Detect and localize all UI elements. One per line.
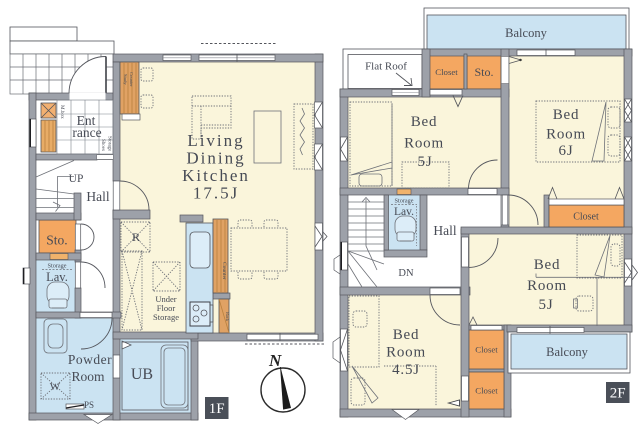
svg-text:2F: 2F	[610, 386, 626, 402]
svg-text:rance: rance	[72, 125, 101, 140]
svg-text:Bed: Bed	[553, 107, 580, 123]
svg-text:Dining: Dining	[186, 149, 245, 168]
svg-text:UB: UB	[131, 366, 153, 383]
svg-text:Living: Living	[187, 131, 244, 150]
svg-text:Closet: Closet	[435, 67, 458, 77]
svg-text:Study: Study	[123, 74, 128, 85]
svg-text:Sto.: Sto.	[46, 233, 67, 248]
svg-text:Bed: Bed	[393, 327, 420, 343]
svg-text:Room: Room	[71, 369, 105, 384]
svg-text:Room: Room	[386, 345, 426, 361]
svg-text:R: R	[132, 230, 140, 244]
svg-text:Counter: Counter	[221, 262, 227, 280]
svg-text:17.5J: 17.5J	[193, 184, 239, 203]
svg-text:Flat Roof: Flat Roof	[365, 61, 407, 73]
svg-text:Lav.: Lav.	[46, 270, 68, 284]
svg-text:6J: 6J	[559, 143, 574, 159]
svg-text:Bed: Bed	[534, 257, 561, 273]
svg-text:Room: Room	[546, 127, 586, 143]
svg-text:Room: Room	[527, 278, 567, 294]
svg-text:Hall: Hall	[86, 189, 109, 204]
svg-text:Storage: Storage	[153, 312, 179, 322]
svg-text:Powder: Powder	[68, 352, 112, 367]
svg-text:Storage: Storage	[48, 263, 67, 270]
svg-text:Bed: Bed	[411, 114, 438, 130]
svg-text:Sto.: Sto.	[474, 65, 493, 79]
svg-text:PS: PS	[84, 400, 94, 410]
svg-text:1F: 1F	[209, 401, 225, 417]
svg-text:Closet: Closet	[573, 212, 599, 223]
svg-text:4.5J: 4.5J	[392, 362, 420, 378]
svg-text:5J: 5J	[539, 297, 554, 313]
svg-text:Room: Room	[404, 136, 444, 152]
svg-text:5J: 5J	[418, 154, 433, 170]
svg-text:Storage: Storage	[107, 136, 112, 152]
svg-text:Balcony: Balcony	[546, 345, 588, 359]
svg-text:Kitchen: Kitchen	[182, 166, 250, 185]
svg-text:Closet: Closet	[475, 386, 498, 396]
svg-text:W: W	[50, 381, 61, 393]
svg-text:Shoes: Shoes	[100, 139, 105, 151]
svg-text:DN: DN	[398, 268, 414, 279]
svg-text:Closet: Closet	[475, 345, 498, 355]
svg-text:Balcony: Balcony	[505, 26, 547, 40]
svg-text:UP: UP	[69, 173, 84, 185]
svg-text:Rack: Rack	[225, 312, 230, 322]
svg-text:Counter: Counter	[129, 72, 134, 87]
svg-text:Hall: Hall	[433, 223, 456, 238]
svg-text:N: N	[268, 351, 282, 370]
svg-text:M.box: M.box	[59, 105, 65, 119]
svg-text:Storage: Storage	[395, 198, 414, 205]
